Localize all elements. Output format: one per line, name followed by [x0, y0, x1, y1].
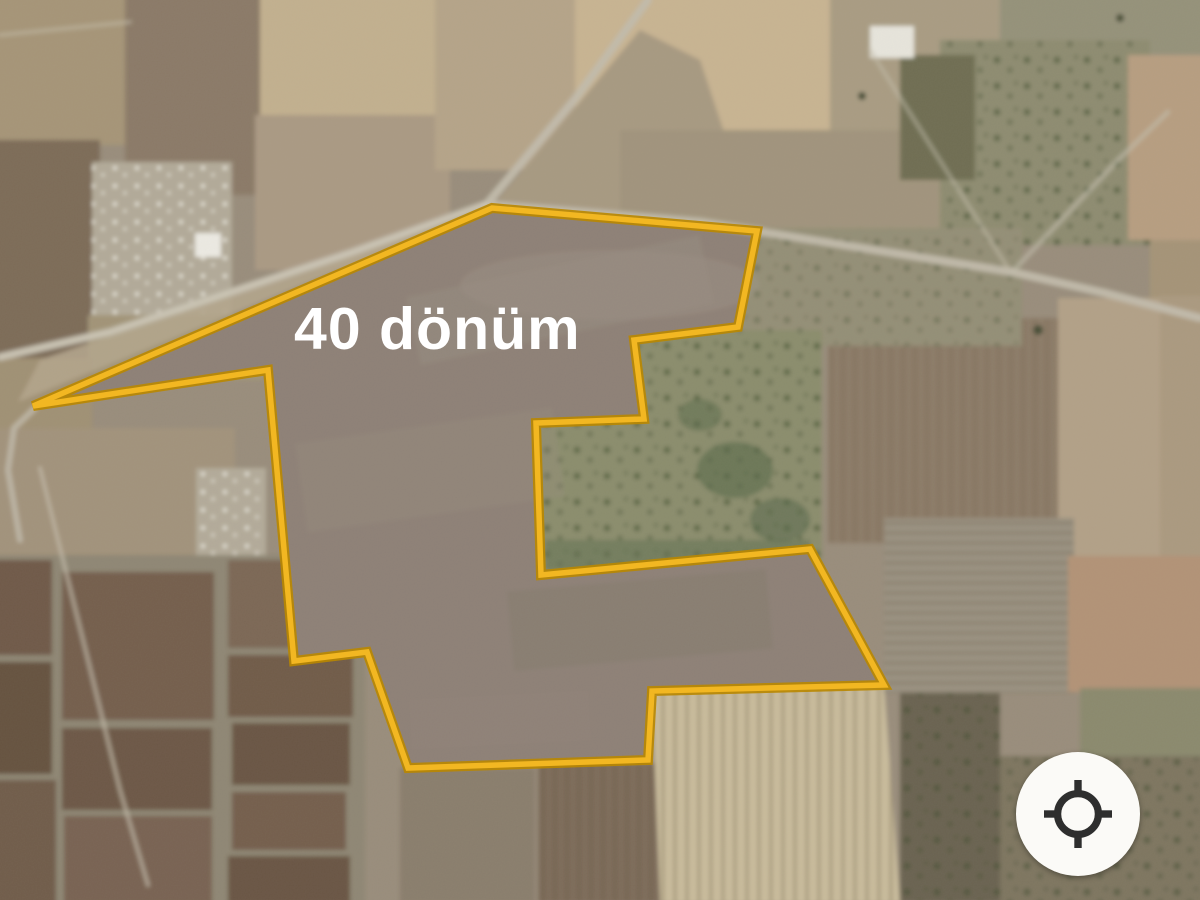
- my-location-button[interactable]: [1016, 752, 1140, 876]
- satellite-imagery: [0, 0, 1200, 900]
- map-canvas[interactable]: 40 dönüm: [0, 0, 1200, 900]
- area-label: 40 dönüm: [294, 300, 581, 359]
- my-location-icon: [1044, 780, 1112, 848]
